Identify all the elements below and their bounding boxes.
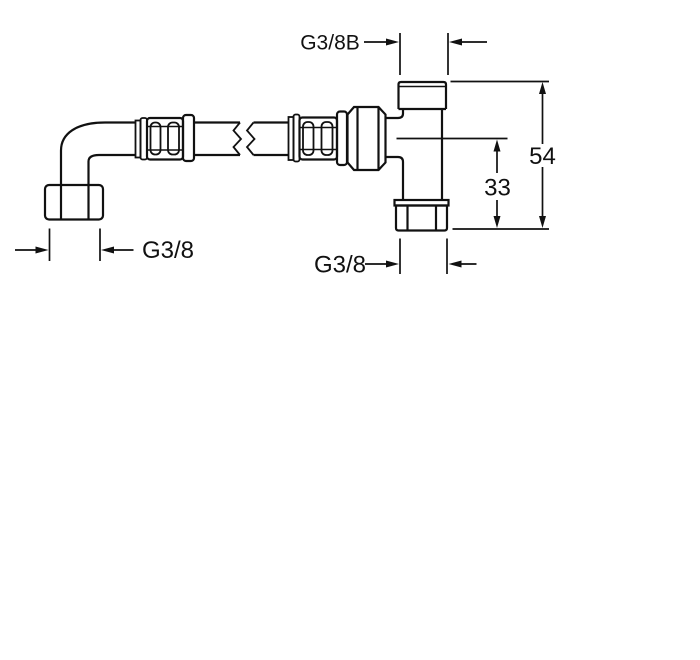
hose-middle-section xyxy=(194,123,289,156)
body-left-lower-edge xyxy=(386,157,404,200)
technical-drawing: G3/8B 54 33 G3/ xyxy=(0,0,700,660)
tee-valve-body xyxy=(386,82,449,231)
crimp-collar xyxy=(337,112,347,166)
dimension-outlet-thread: G3/8 xyxy=(314,239,477,279)
elbow-outer-wall xyxy=(61,123,136,186)
arrowhead-left xyxy=(101,247,114,254)
arrowhead-right xyxy=(36,247,49,254)
break-zigzag-right xyxy=(247,123,255,156)
crimp-fitting-left xyxy=(136,115,195,161)
drawing-canvas: G3/8B 54 33 G3/ xyxy=(0,0,700,660)
elbow-thread-label: G3/8 xyxy=(142,237,194,264)
top-thread-label: G3/8B xyxy=(300,32,360,55)
arrowhead-up xyxy=(539,82,546,94)
union-nut xyxy=(348,107,386,170)
crimp-fitting-right xyxy=(289,112,348,166)
break-zigzag-left xyxy=(234,123,242,156)
crimp-collar xyxy=(183,115,194,161)
dimension-total-height: 54 xyxy=(451,82,556,230)
dimension-outlet-height: 33 xyxy=(397,139,511,229)
dimension-elbow-thread: G3/8 xyxy=(15,229,194,265)
total-height-label: 54 xyxy=(529,143,556,170)
elbow-inner-wall xyxy=(89,155,136,185)
arrowhead-right xyxy=(386,261,399,268)
arrowhead-down xyxy=(539,216,546,228)
arrowhead-up xyxy=(494,140,501,152)
outlet-thread-label: G3/8 xyxy=(314,252,366,279)
arrowhead-right xyxy=(386,39,399,46)
body-left-upper-edge xyxy=(386,109,404,118)
outlet-nut-body xyxy=(396,206,447,231)
arrowhead-down xyxy=(494,216,501,228)
dimension-top-thread: G3/8B xyxy=(300,32,487,76)
elbow-fitting xyxy=(45,123,136,220)
elbow-nut-body xyxy=(45,185,103,220)
union-nut-outline xyxy=(348,107,386,170)
arrowhead-left xyxy=(449,261,462,268)
outlet-height-label: 33 xyxy=(484,175,511,202)
arrowhead-left xyxy=(449,39,462,46)
